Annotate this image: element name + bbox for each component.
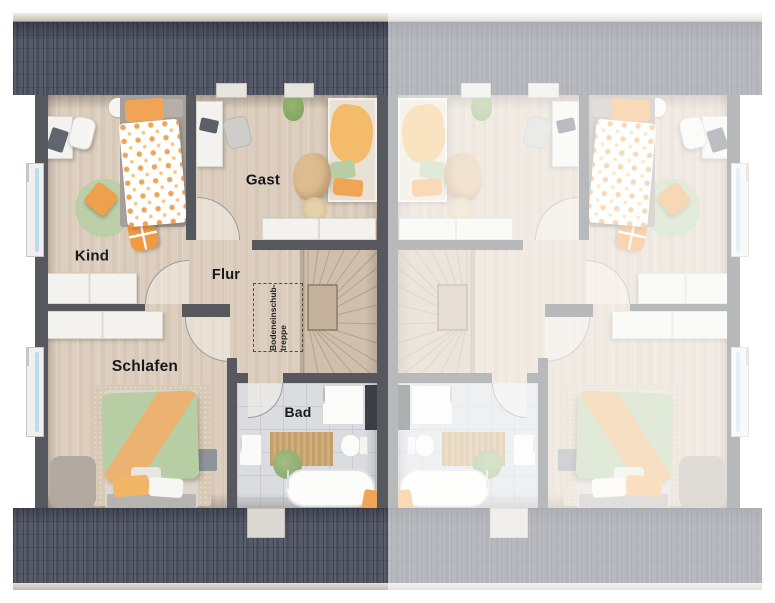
kind-desk	[702, 116, 732, 159]
toilet	[340, 434, 361, 457]
roof-shadow-bottom	[388, 493, 740, 508]
kind-sideboard	[42, 273, 137, 304]
wall-schlafen-bad	[538, 358, 548, 508]
annotation-line2: treppe	[278, 285, 288, 351]
roof-bottom	[13, 508, 388, 583]
unit-right-mirrored-faded: Kind Gast Flur Schlafen Bad Bodeneinschu…	[388, 13, 762, 590]
wall-shadow-party	[398, 95, 410, 508]
window-kind	[26, 163, 44, 257]
roof-window-a	[528, 83, 559, 98]
wood-floor	[388, 95, 740, 508]
bathroom-cabinet	[398, 385, 410, 430]
gast-plant	[283, 94, 304, 121]
bathroom-sink	[513, 434, 536, 466]
gast-clothes-heap	[444, 153, 482, 201]
kind-bed-duvet	[119, 119, 188, 228]
exterior-wall-left	[35, 95, 48, 508]
gast-sideboard	[262, 218, 376, 240]
door-arc-bad	[492, 383, 527, 418]
gast-desk	[196, 101, 223, 167]
toilet	[414, 434, 435, 457]
gast-daybed	[398, 98, 447, 202]
window-glass	[35, 168, 39, 252]
gast-sideboard	[399, 218, 513, 240]
window-glass	[35, 352, 39, 432]
kind-round-rug	[642, 179, 700, 237]
door-arc-kind	[586, 260, 630, 304]
kind-pillow-gray	[592, 99, 612, 117]
gast-desk-chair	[522, 114, 554, 150]
toilet-tank	[407, 436, 416, 455]
wall-kind-schlafen	[630, 304, 740, 311]
wall-flur-schlafen	[182, 304, 230, 317]
schlafen-sideboard	[42, 311, 163, 339]
schlafen-duvet	[575, 390, 673, 481]
wall-bad-top-left	[237, 373, 248, 383]
room-label-kind: Kind	[75, 248, 109, 265]
window-kind	[731, 163, 749, 257]
winder-staircase	[398, 250, 475, 373]
kind-side-table	[647, 98, 666, 117]
window-schlafen	[731, 347, 749, 437]
kind-floor-cushion	[615, 216, 649, 252]
schlafen-armchair	[679, 456, 725, 508]
wall-schlafen-bad	[227, 358, 237, 508]
roof-notch-bottom	[247, 508, 285, 538]
roof-bottom	[388, 508, 762, 583]
schlafen-rug	[564, 385, 682, 506]
bathroom-plant	[473, 450, 502, 479]
schlafen-pillow-back	[614, 467, 644, 481]
duplex-floor-plan: Kind Gast Flur Schlafen Bad Bodeneinschu…	[13, 13, 762, 590]
gast-pillow-orange	[411, 178, 442, 198]
wall-bad-top-right	[398, 373, 492, 383]
gast-laptop	[556, 117, 576, 133]
kind-bed-duvet	[588, 119, 657, 228]
gast-pillow-green	[330, 159, 356, 180]
door-arc-gast	[535, 197, 578, 240]
toilet-tank	[359, 436, 368, 455]
housing-unit: Kind Gast Flur Schlafen Bad Bodeneinschu…	[13, 13, 388, 590]
schlafen-armchair	[50, 456, 96, 508]
housing-unit: Kind Gast Flur Schlafen Bad Bodeneinschu…	[388, 13, 762, 590]
gast-desk	[552, 101, 579, 167]
gast-pillow-green	[419, 159, 445, 180]
roof-top	[388, 22, 762, 95]
room-label-schlafen: Schlafen	[112, 358, 178, 376]
window-schlafen	[26, 347, 44, 437]
schlafen-side-table	[558, 449, 580, 471]
wall-gast-flur	[398, 240, 523, 250]
roof-ridge	[388, 13, 762, 22]
annotation-line1: Bodeneinschub-	[268, 285, 278, 351]
schlafen-pillow-white	[148, 477, 183, 498]
wall-shadow-left	[717, 95, 727, 508]
roof-window-b	[284, 83, 314, 98]
kind-slipper	[603, 209, 618, 226]
wall-kind-gast	[186, 95, 196, 240]
kind-rug-pillow	[656, 181, 692, 217]
party-wall	[377, 95, 388, 508]
door-arc-schlafen	[545, 317, 590, 362]
schlafen-pillow-white	[591, 477, 626, 498]
schlafen-headboard	[579, 494, 668, 508]
wall-bad-top-right	[283, 373, 377, 383]
wall-kind-schlafen	[35, 304, 145, 311]
gast-pillow-orange	[332, 178, 363, 198]
shower-tray	[411, 385, 453, 425]
kind-slipper	[614, 201, 626, 217]
exterior-wall-left	[727, 95, 740, 508]
schlafen-pillow-orange	[625, 474, 663, 497]
attic-stair-annotation-text: Bodeneinschub- treppe	[268, 285, 288, 351]
schlafen-pillow-orange	[112, 474, 150, 497]
bath-towel	[395, 489, 413, 510]
wall-flur-schlafen	[545, 304, 593, 317]
kind-desk-chair	[677, 115, 708, 152]
wall-gast-flur	[252, 240, 377, 250]
kind-laptop	[706, 127, 729, 153]
window-glass	[736, 168, 740, 252]
roof-ridge	[13, 13, 388, 22]
roof-gutter	[388, 583, 762, 590]
kind-bed	[589, 95, 655, 227]
gast-blanket	[398, 102, 449, 165]
roof-gutter	[13, 583, 388, 590]
window-glass	[736, 352, 740, 432]
bathtub	[400, 469, 490, 507]
kind-pillow-gray	[163, 99, 183, 117]
gast-plant	[471, 94, 492, 121]
kind-pillow-orange	[609, 98, 650, 123]
room-label-bad: Bad	[284, 404, 311, 420]
roof-window-a	[216, 83, 247, 98]
gast-woven-pouf	[448, 197, 473, 222]
kind-pillow-orange	[124, 98, 165, 123]
schlafen-double-bed	[577, 390, 670, 508]
roof-shadow-top	[388, 95, 740, 109]
roof-notch-bottom	[490, 508, 528, 538]
kind-sideboard	[638, 273, 733, 304]
roof-top	[13, 22, 388, 95]
shower-tray	[322, 385, 364, 425]
unit-left: Kind Gast Flur Schlafen Bad Bodeneinschu…	[13, 13, 388, 590]
room-label-flur: Flur	[212, 267, 240, 283]
schlafen-sideboard	[612, 311, 733, 339]
bathroom-tile-floor	[398, 383, 538, 508]
bathroom-cabinet	[365, 385, 377, 430]
room-label-gast: Gast	[246, 172, 280, 189]
roof-window-b	[461, 83, 491, 98]
wall-kind-gast	[579, 95, 589, 240]
bathroom-sink	[239, 434, 262, 466]
bath-mat-wood	[442, 432, 505, 466]
party-wall	[388, 95, 398, 508]
floor-plan-canvas: Kind Gast Flur Schlafen Bad Bodeneinschu…	[0, 0, 775, 603]
wall-bad-top-left	[527, 373, 538, 383]
attic-stair-annotation: Bodeneinschub- treppe	[253, 283, 303, 352]
